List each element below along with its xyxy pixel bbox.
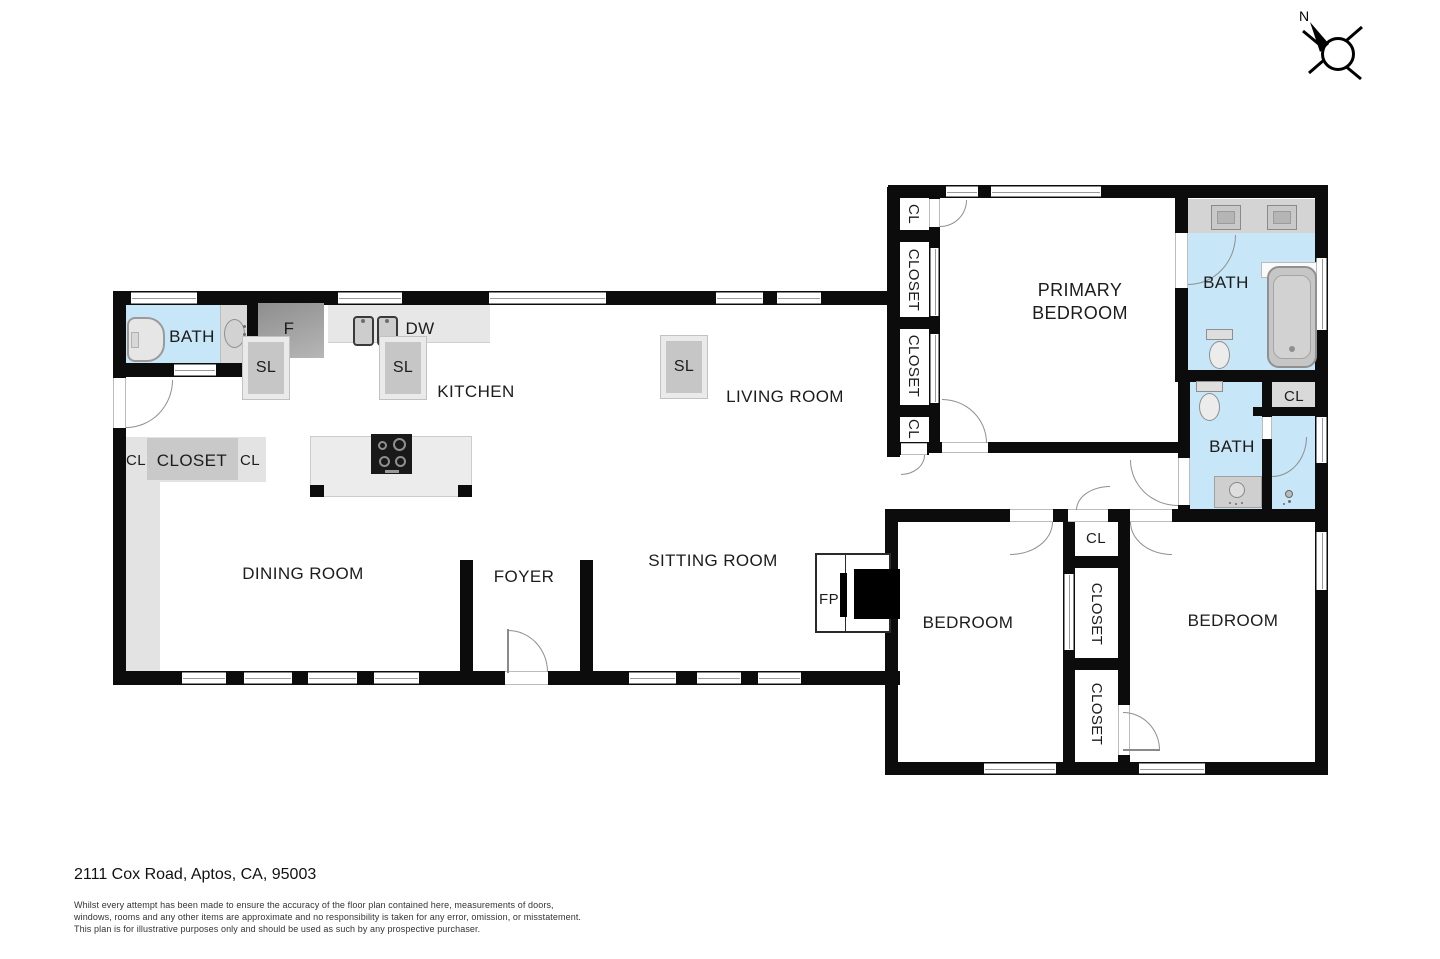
window <box>697 672 741 684</box>
cooktop-controls <box>385 470 399 473</box>
closet-label: CLOSET <box>1088 674 1104 754</box>
faucet-dot <box>1241 502 1243 504</box>
door-swing-arc <box>1123 712 1160 750</box>
wall <box>929 198 940 445</box>
vanity-sink <box>1267 205 1297 230</box>
shower-dot <box>1288 500 1291 503</box>
room-label-primary: PRIMARY BEDROOM <box>1015 279 1145 325</box>
vanity-sink-basin <box>1273 211 1291 224</box>
room-label-bath-main: BATH <box>159 327 225 347</box>
sink-oval <box>224 319 245 348</box>
window <box>930 248 939 316</box>
window <box>489 292 606 304</box>
disclaimer-line: Whilst every attempt has been made to en… <box>74 900 554 910</box>
skylight-box: SL <box>661 336 707 398</box>
window <box>629 672 676 684</box>
floor-plan: SL SL SL <box>0 0 1440 959</box>
faucet-dot <box>243 325 246 328</box>
burner <box>393 438 406 451</box>
fireplace-label: FP <box>817 591 841 608</box>
room-label-foyer: FOYER <box>492 567 556 587</box>
vanity-sink <box>1211 205 1241 230</box>
wall <box>460 560 473 673</box>
burner <box>379 456 390 467</box>
disclaimer-line: windows, rooms and any other items are a… <box>74 912 581 922</box>
window <box>758 672 801 684</box>
window <box>991 186 1101 197</box>
window <box>338 292 402 304</box>
wall <box>1063 658 1130 670</box>
closet-label: CLOSET <box>905 326 921 406</box>
window <box>930 334 939 403</box>
shower-head-icon <box>1285 490 1293 498</box>
toilet-bowl <box>1209 341 1230 369</box>
window <box>946 186 978 197</box>
closet-label: CLOSET <box>1088 574 1104 654</box>
skylight-label: SL <box>256 359 276 377</box>
room-label-bedroom-left: BEDROOM <box>917 613 1019 633</box>
closet-abbr-label: CL <box>905 194 921 234</box>
window <box>182 672 226 684</box>
room-label-bedroom-right: BEDROOM <box>1182 611 1284 631</box>
window <box>1064 574 1074 650</box>
door-opening <box>1178 458 1190 505</box>
door-swing-arc <box>508 630 548 672</box>
door-opening <box>929 199 940 227</box>
wall <box>1262 377 1272 510</box>
shower-dot <box>1283 503 1285 505</box>
dishwasher-label: DW <box>402 319 438 339</box>
closet-label: CLOSET <box>155 451 229 471</box>
door-leaf <box>507 629 509 673</box>
wall <box>888 762 1328 775</box>
wall <box>1175 198 1188 382</box>
toilet-tank <box>1196 381 1223 392</box>
door-opening <box>942 442 988 453</box>
door-leaf <box>1123 749 1160 751</box>
closet-abbr-label: CL <box>905 409 921 449</box>
faucet-dot <box>243 333 246 336</box>
door-swing-arc <box>126 380 173 428</box>
wall <box>113 291 126 685</box>
bathtub-inner <box>131 332 139 348</box>
door-swing-arc <box>1130 522 1172 555</box>
bathtub-primary <box>1267 266 1317 368</box>
door-opening <box>1262 417 1272 439</box>
closet-abbr-label: CL <box>124 452 148 469</box>
closet-abbr-label: CL <box>1078 530 1114 547</box>
faucet-dot <box>361 319 365 323</box>
door-opening <box>1068 509 1108 522</box>
island-foot <box>310 485 324 497</box>
wall <box>580 560 593 673</box>
closet-abbr-label: CL <box>1272 388 1316 405</box>
skylight-label: SL <box>393 359 413 377</box>
room-label-living: LIVING ROOM <box>718 387 852 407</box>
door-opening <box>1130 509 1172 522</box>
skylight-box: SL <box>380 337 426 399</box>
closet-abbr-label: CL <box>236 452 264 469</box>
faucet-dot <box>1229 502 1231 504</box>
round-sink <box>1229 482 1245 498</box>
skylight-label: SL <box>674 358 694 376</box>
door-opening <box>1175 233 1188 288</box>
room-label-primary-bath: BATH <box>1198 273 1254 293</box>
window <box>1139 763 1205 774</box>
burner <box>395 456 406 467</box>
address-text: 2111 Cox Road, Aptos, CA, 95003 <box>74 866 316 884</box>
window <box>308 672 357 684</box>
window <box>1316 258 1327 330</box>
wall <box>1063 556 1130 568</box>
closet-label: CLOSET <box>905 240 921 320</box>
door-swing-arc <box>942 399 987 443</box>
faucet-dot <box>385 319 389 323</box>
disclaimer-line: This plan is for illustrative purposes o… <box>74 924 480 934</box>
window <box>984 763 1056 774</box>
cooktop <box>371 434 412 474</box>
window <box>374 672 419 684</box>
window <box>716 292 763 304</box>
window <box>1316 417 1327 463</box>
window <box>1316 532 1327 590</box>
door-opening <box>1010 509 1053 522</box>
fireplace-bar <box>840 573 847 617</box>
room-label-kitchen: KITCHEN <box>430 382 522 402</box>
toilet-bowl <box>1199 393 1220 421</box>
door-swing-arc <box>901 455 925 475</box>
vanity-sink-basin <box>1217 211 1235 224</box>
room-label-sitting: SITTING ROOM <box>646 551 780 571</box>
door-swing-arc <box>940 200 967 227</box>
hall-bath-vanity <box>1214 476 1262 508</box>
skylight-box: SL <box>243 337 289 399</box>
tub-drain <box>1289 346 1295 352</box>
door-opening <box>505 671 548 685</box>
door-swing-arc <box>1010 522 1053 555</box>
fridge-label: F <box>277 319 301 339</box>
door-swing-arc <box>1076 486 1110 510</box>
island-foot <box>458 485 472 497</box>
faucet-dot <box>1235 503 1237 505</box>
window <box>174 364 216 376</box>
compass-north-label: N <box>1299 8 1309 24</box>
door-opening <box>113 378 126 428</box>
fireplace-firebox <box>854 569 900 619</box>
window <box>131 292 197 304</box>
window <box>777 292 821 304</box>
burner <box>378 441 387 450</box>
toilet-tank <box>1206 329 1233 340</box>
wall <box>885 509 898 775</box>
door-swing-arc <box>1130 460 1178 506</box>
window <box>244 672 292 684</box>
room-label-dining: DINING ROOM <box>238 564 368 584</box>
room-label-hall-bath: BATH <box>1203 437 1261 457</box>
